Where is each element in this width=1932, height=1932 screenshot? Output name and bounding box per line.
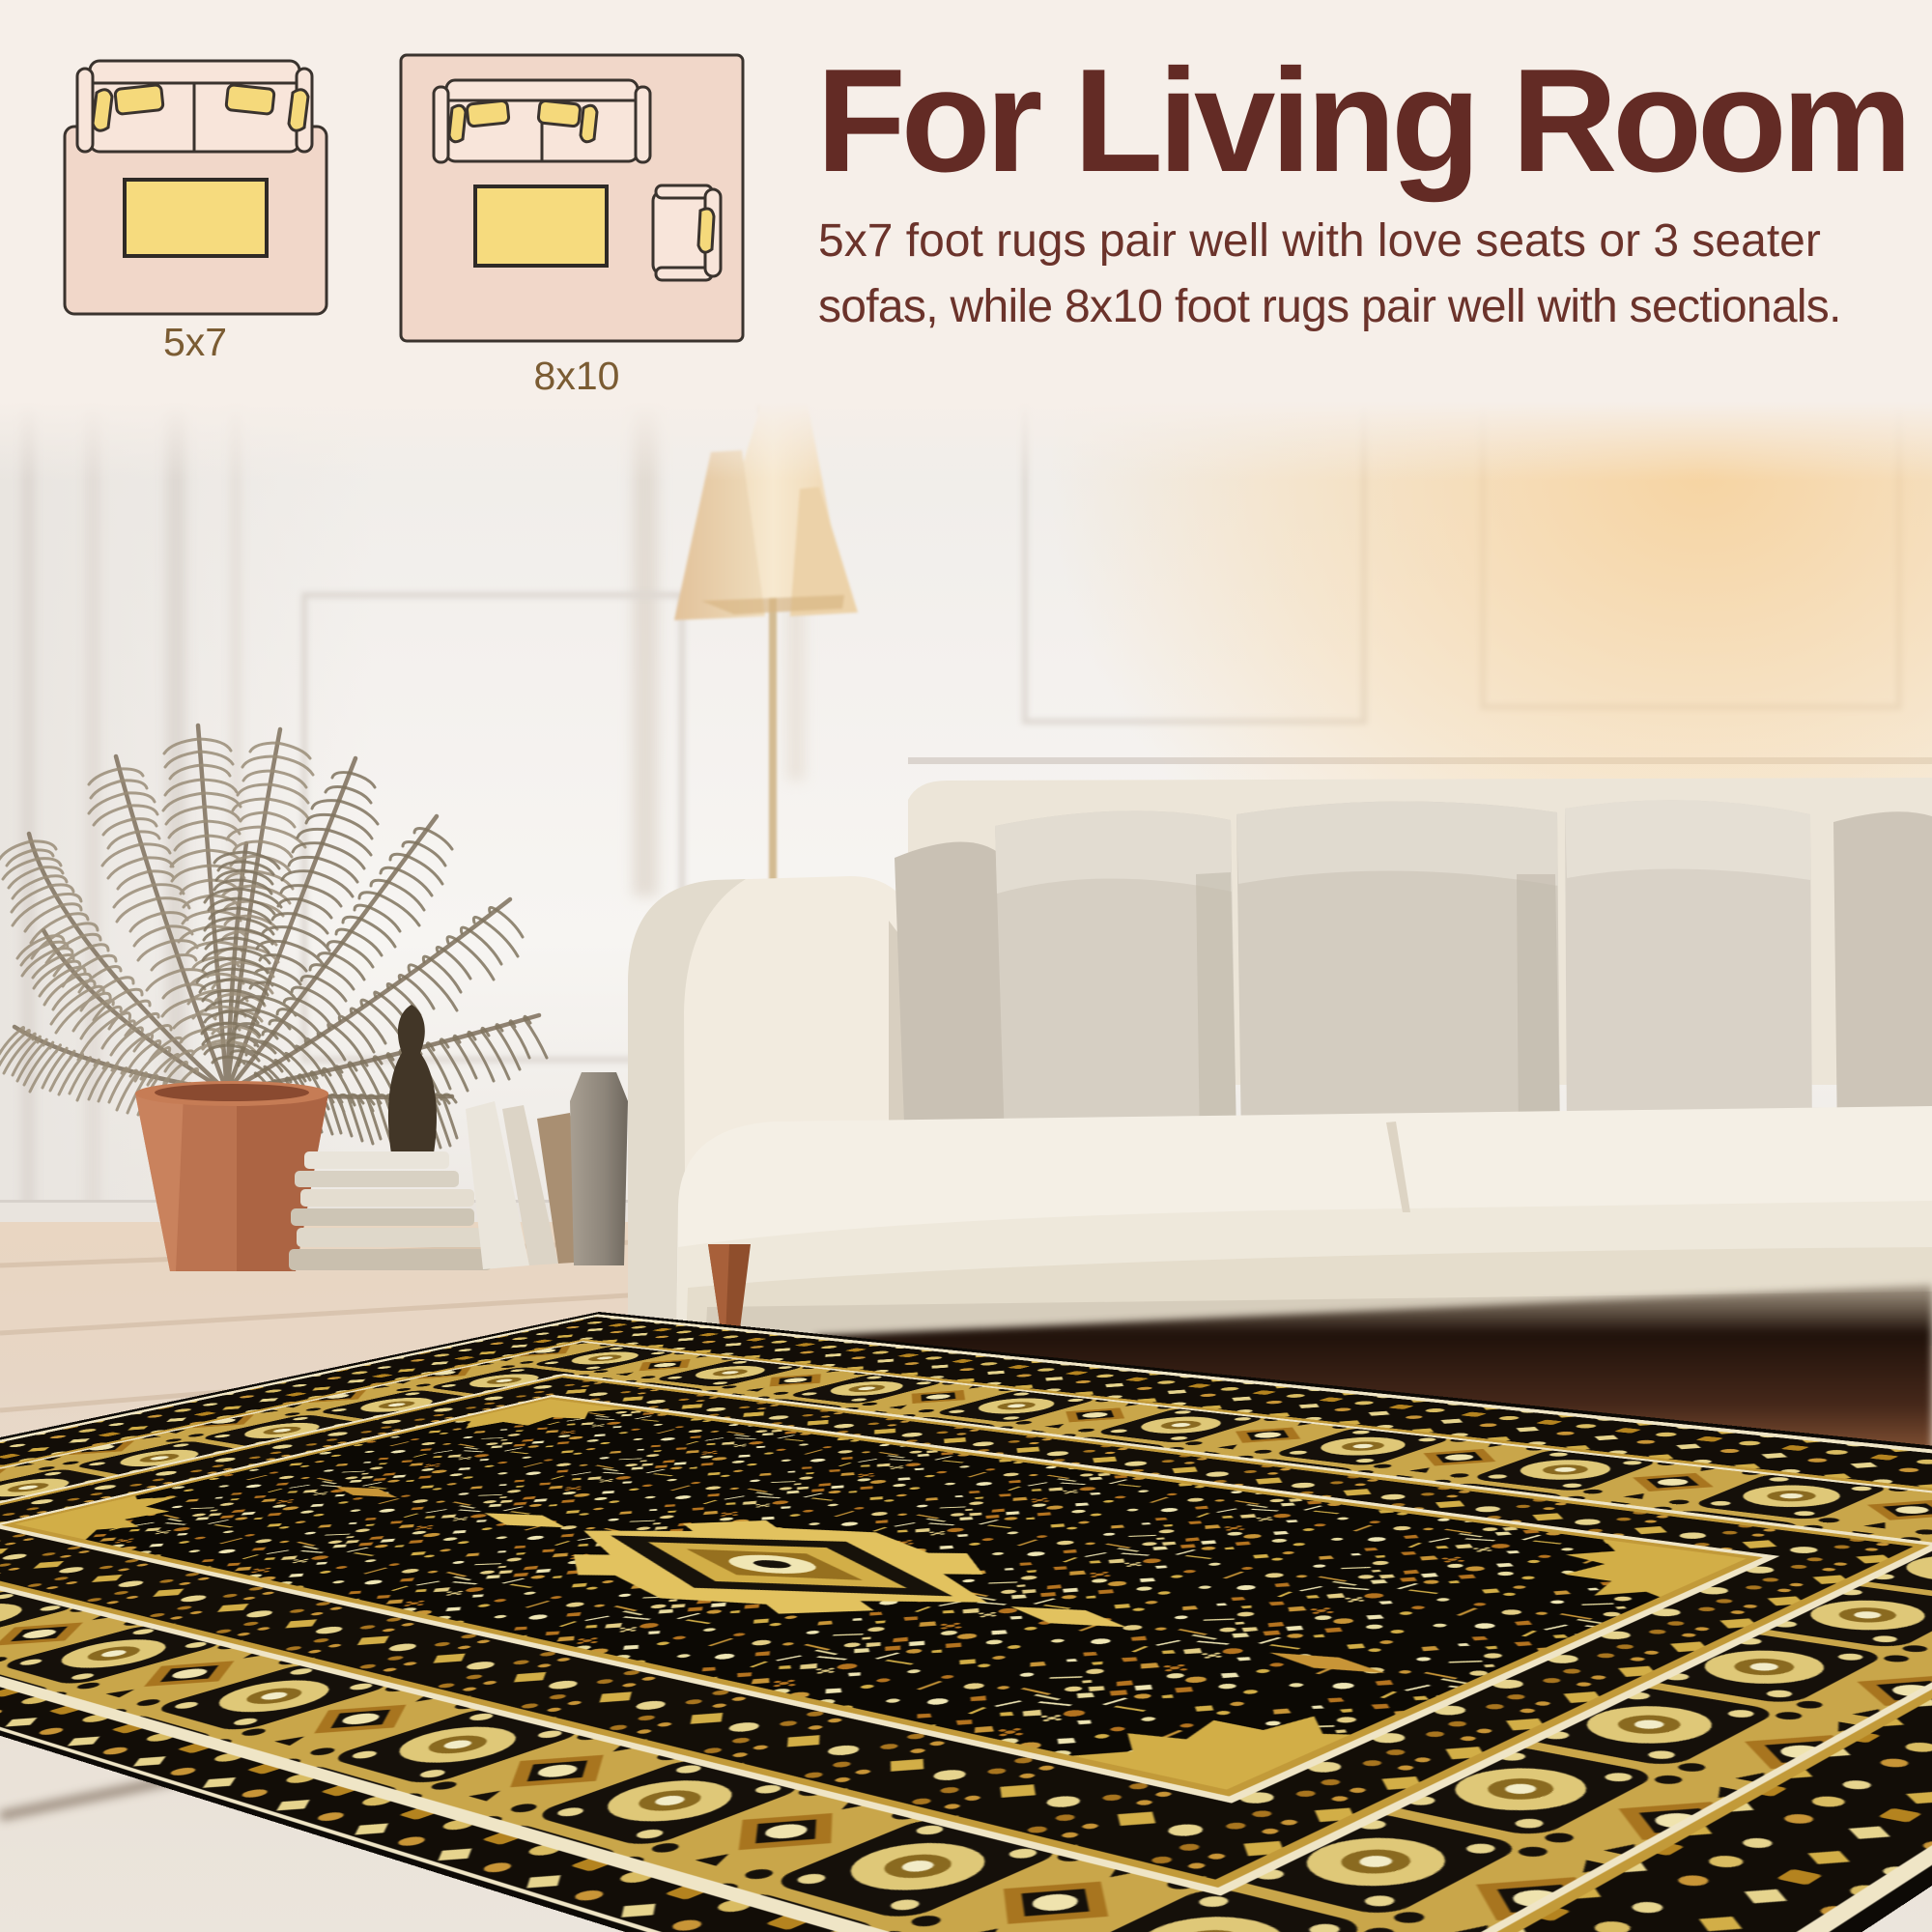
svg-text:5x7: 5x7 [163, 320, 227, 364]
svg-text:8x10: 8x10 [534, 354, 620, 398]
